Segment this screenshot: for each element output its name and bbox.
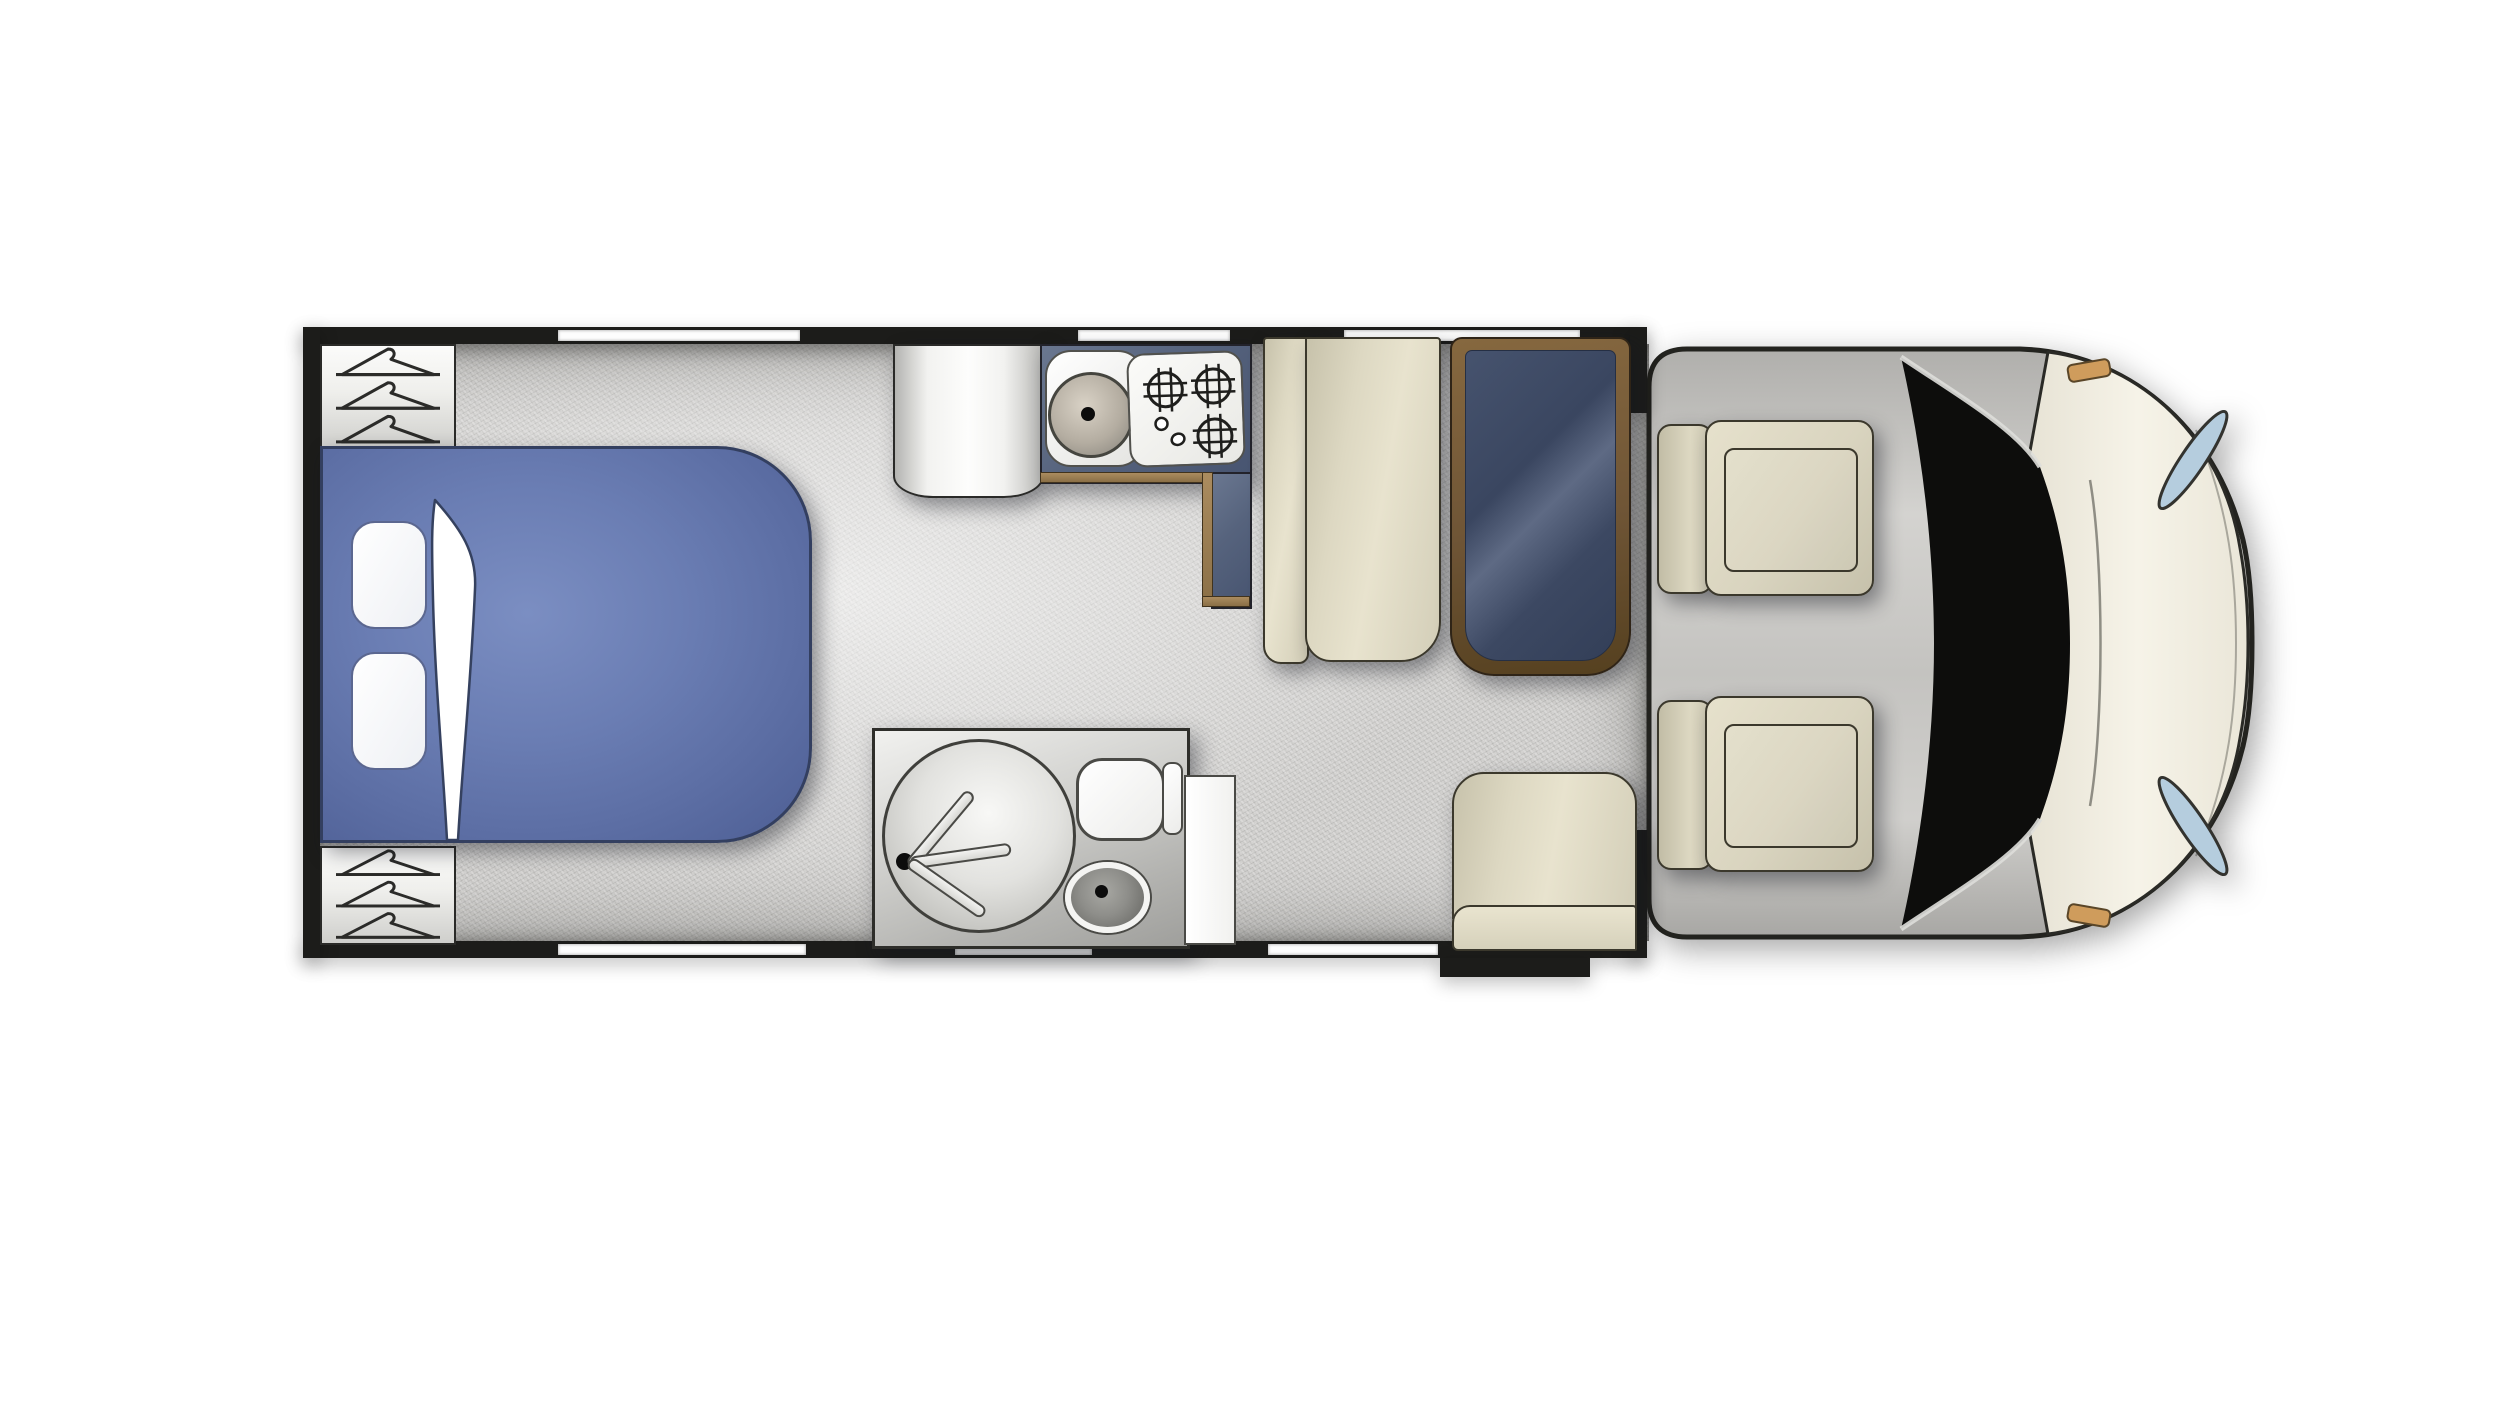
window-bottom-3 xyxy=(1268,944,1438,955)
counter-trim-vertical xyxy=(1202,472,1213,607)
entry-bench-backrest xyxy=(1452,772,1637,919)
wardrobe-top xyxy=(320,344,456,450)
cab-front-assembly xyxy=(1630,315,2300,985)
hanger-icons-top xyxy=(322,346,454,448)
counter-trim-bottom xyxy=(1202,596,1250,607)
window-top-2 xyxy=(1078,330,1230,341)
hob-burner-icons xyxy=(1128,352,1244,466)
entry-step xyxy=(1440,958,1590,977)
gas-hob xyxy=(1126,350,1246,468)
dinette-table xyxy=(1450,337,1631,676)
dinette-bench-backrest xyxy=(1263,337,1309,664)
counter-trim-horizontal xyxy=(1040,472,1213,483)
kitchen-sink-drain xyxy=(1081,407,1095,421)
duvet-fold xyxy=(323,449,809,840)
wardrobe-bottom xyxy=(320,846,456,945)
window-bottom-1 xyxy=(558,944,806,955)
bathroom-washbasin xyxy=(1065,862,1150,933)
cab-seat-1-inner-line xyxy=(1724,448,1858,572)
bathroom-door-panel xyxy=(1184,775,1236,945)
pillow-2 xyxy=(351,652,427,770)
toilet-cistern xyxy=(1162,762,1183,835)
wall-right-top-stub xyxy=(1630,327,1647,413)
cab-seat-2-inner-line xyxy=(1724,724,1858,848)
cab-seat-2-cushion xyxy=(1705,696,1874,872)
toilet-bowl xyxy=(1076,758,1165,841)
floorplan-scene xyxy=(0,0,2500,1419)
dinette-bench-cushion xyxy=(1305,337,1441,662)
fridge-cabinet xyxy=(893,344,1044,498)
double-bed xyxy=(320,446,812,843)
wall-left xyxy=(303,327,320,958)
pillow-1 xyxy=(351,521,427,629)
entry-bench-cushion xyxy=(1452,905,1637,951)
kitchen-counter-leg xyxy=(1211,472,1252,609)
washbasin-drain xyxy=(1095,885,1108,898)
hanger-icons-bottom xyxy=(322,848,454,943)
dinette-table-top xyxy=(1465,350,1616,661)
cab-seat-1-cushion xyxy=(1705,420,1874,596)
window-top-1 xyxy=(558,330,800,341)
